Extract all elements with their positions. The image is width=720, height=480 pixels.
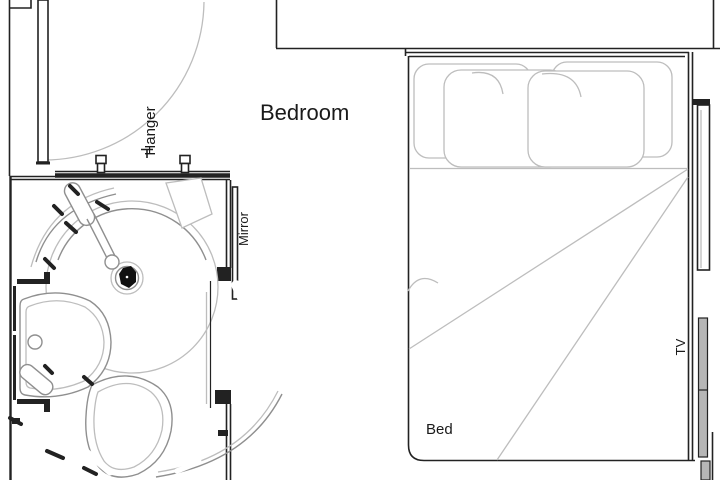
door-jamb-cap [215,390,231,404]
hanger-label: Hanger [143,96,159,166]
shower-head [105,255,119,269]
bedroom-right-wall [689,52,693,461]
blanket-fold-lines [408,169,688,461]
wall-bracket [692,99,710,105]
pillow [528,71,644,167]
entry-door-swing-arc [44,2,204,160]
mirror-label: Mirror [236,194,252,264]
tv-label: TV [673,312,689,382]
bedroom-top-wall [276,0,720,56]
hook-icon [180,156,190,164]
shower-fixture [54,180,119,269]
floor-plan: Bedroom Hanger Mirror Bed TV [0,0,720,480]
entry-door-leaf [38,0,48,162]
floor-plan-drawing [0,0,720,480]
bedroom-label: Bedroom [260,100,349,126]
side-cabinet [698,105,710,270]
entry-door [36,0,204,163]
tv-shape [699,318,708,457]
pillows [414,62,672,167]
bathroom-door [156,285,292,477]
door-hinge-cap [217,267,231,281]
wall-unit [692,99,713,480]
bed-label: Bed [426,421,453,439]
bedroom-area [405,52,713,480]
corridor-wall [10,0,32,176]
hook-icon [96,156,106,164]
